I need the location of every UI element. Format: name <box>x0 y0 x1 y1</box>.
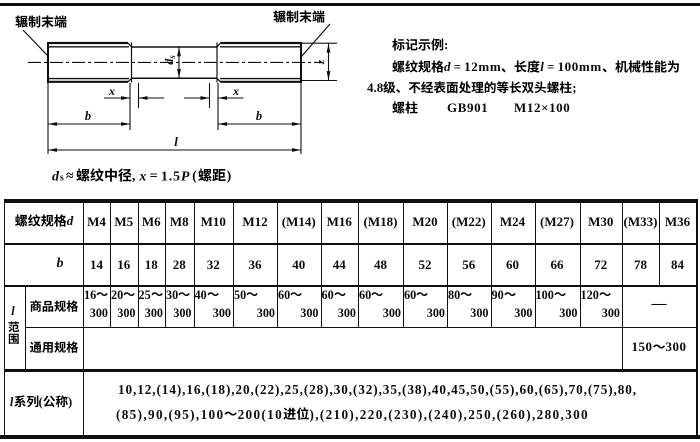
svg-text:b: b <box>85 109 91 123</box>
svg-text:b: b <box>256 109 262 123</box>
svg-text:l: l <box>174 134 178 149</box>
svg-text:z: z <box>315 59 327 65</box>
svg-text:x: x <box>232 84 239 98</box>
svg-text:ds: ds <box>162 55 177 65</box>
svg-text:x: x <box>108 84 115 98</box>
